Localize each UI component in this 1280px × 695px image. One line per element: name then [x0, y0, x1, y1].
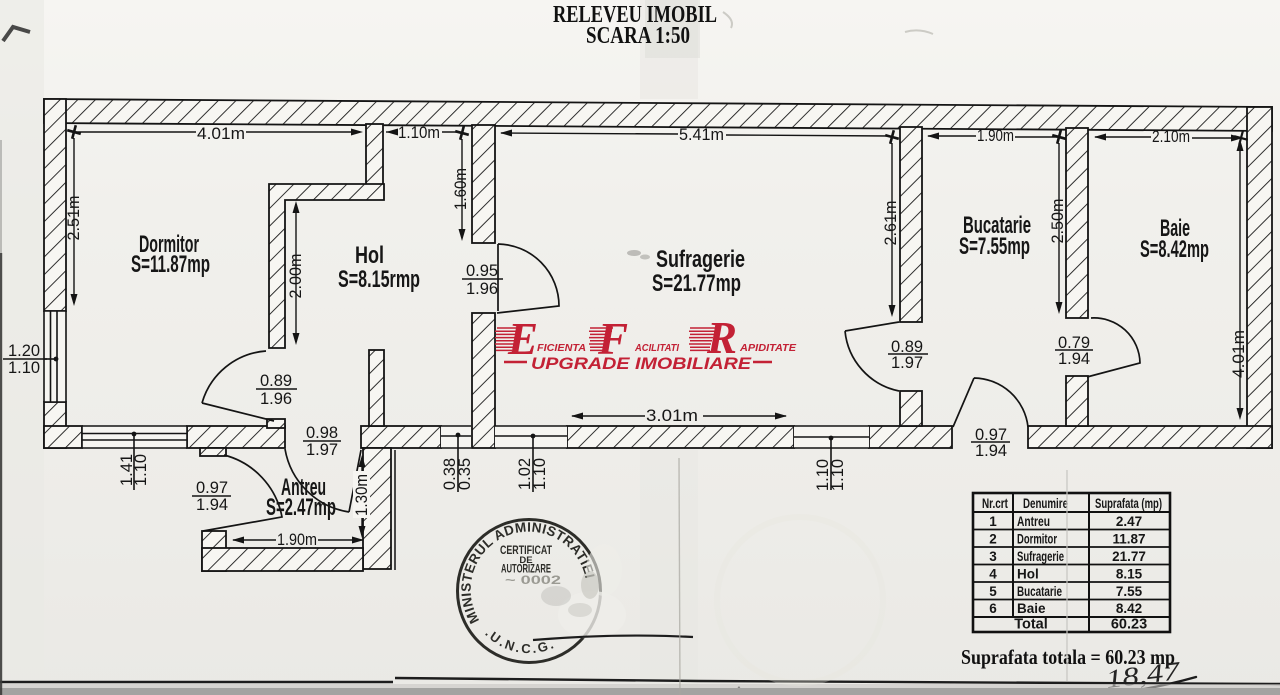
- svg-text:Bucatarie: Bucatarie: [1017, 584, 1062, 599]
- svg-text:Suprafata (mp): Suprafata (mp): [1095, 496, 1162, 511]
- svg-text:Hol: Hol: [1017, 567, 1039, 582]
- svg-text:3: 3: [989, 549, 997, 564]
- svg-text:1.94: 1.94: [196, 496, 228, 514]
- svg-text:1.94: 1.94: [1058, 350, 1090, 368]
- svg-text:0.98: 0.98: [306, 424, 338, 442]
- svg-text:2: 2: [989, 532, 997, 547]
- svg-text:1.94: 1.94: [975, 442, 1007, 460]
- svg-text:S=21.77mp: S=21.77mp: [652, 270, 741, 297]
- svg-text:8.15: 8.15: [1116, 567, 1143, 582]
- svg-text:8.42: 8.42: [1116, 601, 1142, 616]
- svg-text:7.55: 7.55: [1116, 584, 1143, 599]
- svg-text:5.41m: 5.41m: [679, 126, 724, 144]
- svg-text:1: 1: [989, 514, 997, 529]
- svg-text:0.35: 0.35: [456, 458, 474, 490]
- svg-text:11.87: 11.87: [1112, 532, 1145, 547]
- svg-text:1.96: 1.96: [260, 390, 292, 408]
- svg-text:1.30m: 1.30m: [353, 474, 371, 516]
- svg-text:4.01m: 4.01m: [197, 125, 245, 143]
- svg-text:1.60m: 1.60m: [452, 168, 470, 210]
- svg-text:21.77: 21.77: [1112, 549, 1146, 564]
- svg-text:2.51m: 2.51m: [65, 196, 83, 241]
- svg-text:2.00m: 2.00m: [287, 254, 305, 299]
- svg-text:1.10: 1.10: [829, 459, 847, 491]
- svg-text:1.90m: 1.90m: [277, 531, 317, 549]
- svg-text:UPGRADE IMOBILIARE: UPGRADE IMOBILIARE: [531, 354, 752, 373]
- svg-text:1.97: 1.97: [891, 354, 923, 372]
- svg-text:4.01m: 4.01m: [1230, 330, 1248, 378]
- svg-text:1.90m: 1.90m: [977, 127, 1014, 145]
- svg-text:FICIENTA: FICIENTA: [537, 342, 586, 354]
- svg-text:Denumire: Denumire: [1023, 496, 1068, 511]
- svg-text:60.23: 60.23: [1111, 617, 1147, 633]
- svg-text:2.61m: 2.61m: [882, 201, 900, 246]
- svg-text:4: 4: [989, 567, 997, 582]
- svg-text:Sufragerie: Sufragerie: [1017, 549, 1064, 564]
- svg-text:~ 0002: ~ 0002: [505, 575, 561, 587]
- svg-text:1.97: 1.97: [306, 441, 338, 459]
- svg-text:2.47: 2.47: [1116, 514, 1142, 529]
- svg-text:Hol: Hol: [355, 242, 384, 269]
- svg-text:S=2.47mp: S=2.47mp: [266, 494, 336, 521]
- svg-text:S=8.42mp: S=8.42mp: [1140, 236, 1209, 263]
- svg-text:1.10: 1.10: [531, 458, 549, 490]
- svg-text:Nr.crt: Nr.crt: [982, 496, 1008, 511]
- svg-text:S=11.87mp: S=11.87mp: [131, 251, 210, 278]
- svg-text:Dormitor: Dormitor: [1017, 532, 1058, 547]
- svg-text:6: 6: [989, 601, 997, 616]
- svg-text:Sufragerie: Sufragerie: [656, 246, 745, 273]
- svg-text:1.96: 1.96: [466, 280, 498, 298]
- svg-text:1.20: 1.20: [8, 342, 40, 360]
- svg-text:0.97: 0.97: [196, 479, 228, 497]
- svg-text:Baie: Baie: [1017, 601, 1046, 616]
- svg-text:Total: Total: [1014, 617, 1048, 633]
- svg-text:1.10m: 1.10m: [398, 124, 440, 142]
- svg-text:APIDITATE: APIDITATE: [739, 342, 797, 354]
- svg-text:S=7.55mp: S=7.55mp: [959, 233, 1030, 260]
- svg-text:S=8.15rmp: S=8.15rmp: [338, 266, 420, 293]
- svg-text:Antreu: Antreu: [1017, 514, 1050, 529]
- svg-text:1.10: 1.10: [132, 454, 150, 486]
- svg-text:5: 5: [989, 584, 997, 599]
- svg-text:0.95: 0.95: [466, 262, 498, 280]
- svg-text:SCARA 1:50: SCARA 1:50: [586, 23, 690, 49]
- svg-text:2.50m: 2.50m: [1049, 199, 1067, 244]
- svg-text:1.10: 1.10: [8, 359, 40, 377]
- svg-text:ACILITATI: ACILITATI: [634, 342, 680, 354]
- svg-text:AUTORIZARE: AUTORIZARE: [501, 564, 551, 576]
- svg-text:2.10m: 2.10m: [1152, 128, 1190, 146]
- svg-text:0.89: 0.89: [260, 372, 292, 390]
- svg-text:3.01m: 3.01m: [646, 407, 698, 425]
